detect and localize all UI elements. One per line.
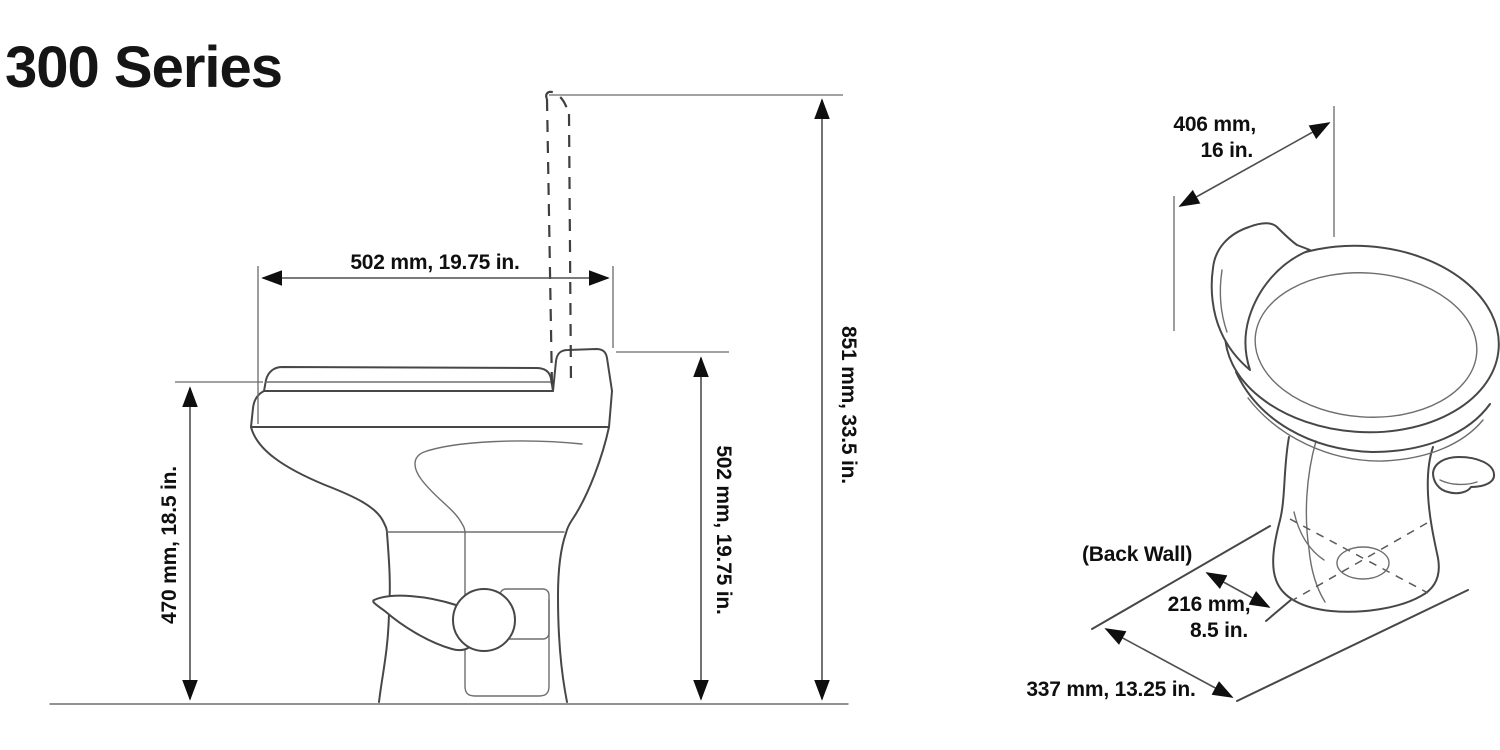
rim-band <box>251 391 612 427</box>
dimension-seat-depth: 502 mm, 19.75 in. <box>258 251 613 424</box>
dim-label-width-line2: 16 in. <box>1201 139 1254 162</box>
dim-label-bowl-height: 470 mm, 18.5 in. <box>158 466 181 624</box>
dim-label-drain-offset-line2: 8.5 in. <box>1190 619 1248 642</box>
toilet-dimension-diagram: 300 Series <box>0 0 1500 750</box>
dimension-seat-height: 502 mm, 19.75 in. <box>616 352 735 699</box>
perspective-view: 406 mm, 16 in. (Back Wall) 216 mm, 8.5 i… <box>1026 106 1500 701</box>
side-view: 502 mm, 19.75 in. 470 mm, 18.5 in. 502 m… <box>50 92 860 704</box>
dim-label-width-line1: 406 mm, <box>1173 113 1256 136</box>
dim-label-seat-depth: 502 mm, 19.75 in. <box>350 251 519 274</box>
dimension-drain-offset: 216 mm, 8.5 in. <box>1168 573 1269 642</box>
seat-hinge-cover <box>553 349 612 391</box>
seat-closed <box>264 367 553 391</box>
dimension-lid-raised-height: 851 mm, 33.5 in. <box>549 95 860 699</box>
flush-knob <box>453 589 515 651</box>
dim-label-lid-raised-height: 851 mm, 33.5 in. <box>837 326 860 484</box>
toilet-body-right-outline <box>558 427 609 702</box>
page-title: 300 Series <box>5 35 282 100</box>
lid-raised-back-edge <box>569 114 571 384</box>
back-wall-label: (Back Wall) <box>1082 543 1192 566</box>
dim-label-drain-offset-line1: 216 mm, <box>1168 593 1251 616</box>
diagram-page: 300 Series <box>0 0 1500 750</box>
dim-label-base-depth: 337 mm, 13.25 in. <box>1026 678 1195 701</box>
toilet-body-left-outline <box>251 427 390 702</box>
lid-raised-front-edge <box>547 99 552 387</box>
lid-raised-dashed <box>546 92 571 387</box>
dimension-bowl-height: 470 mm, 18.5 in. <box>158 382 263 699</box>
dim-label-seat-height: 502 mm, 19.75 in. <box>712 445 735 614</box>
flush-handle <box>1433 457 1494 493</box>
bowl-interior-line <box>415 441 582 533</box>
